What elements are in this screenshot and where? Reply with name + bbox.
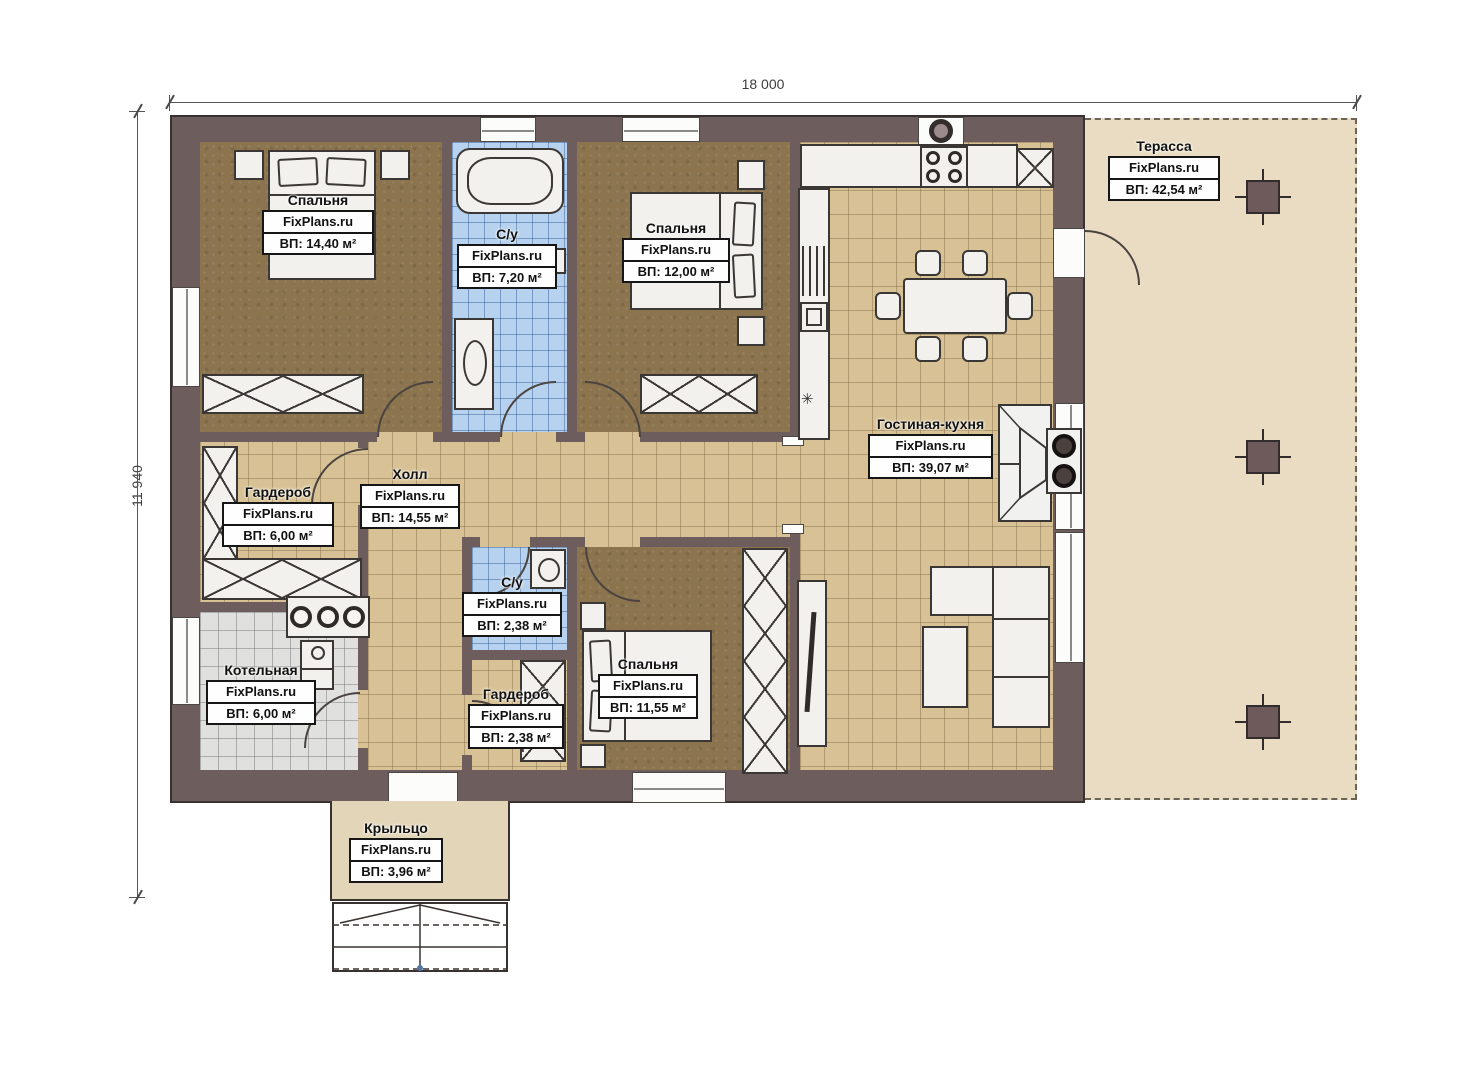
fridge <box>800 302 828 332</box>
room-area: ВП: 42,54 м² <box>1108 178 1220 202</box>
label-terrace: Терасса FixPlans.ru ВП: 42,54 м² <box>1108 138 1220 201</box>
pillow <box>277 157 318 187</box>
room-area: ВП: 14,55 м² <box>360 506 460 530</box>
brand-watermark: FixPlans.ru <box>598 674 698 698</box>
brand-watermark: FixPlans.ru <box>462 592 562 616</box>
wall-segment <box>556 432 585 442</box>
burner <box>926 169 940 183</box>
room-area: ВП: 14,40 м² <box>262 232 374 256</box>
shelf-x-panel <box>282 560 360 598</box>
terrace-door-opening <box>1053 228 1085 278</box>
nightstand <box>737 316 765 346</box>
washer-drum <box>290 606 312 628</box>
coffee-table <box>922 626 968 708</box>
chair <box>915 250 941 276</box>
window <box>622 117 700 142</box>
washbasin-cabinet <box>454 318 494 410</box>
wall-segment <box>472 650 567 660</box>
pillow <box>732 253 756 298</box>
boiler-symbol: ✳ <box>801 390 814 408</box>
chair <box>915 336 941 362</box>
window <box>172 617 200 705</box>
wardrobe-cabinet <box>640 374 758 414</box>
wall-segment <box>472 537 480 547</box>
room-area: ВП: 3,96 м² <box>349 860 443 884</box>
dimension-width-label: 18 000 <box>723 76 803 92</box>
chair <box>875 292 901 320</box>
room-name: Гостиная-кухня <box>868 416 993 432</box>
fridge-inner <box>806 308 822 326</box>
room-area: ВП: 6,00 м² <box>222 524 334 548</box>
room-name: Спальня <box>262 192 374 208</box>
fireplace <box>998 404 1052 522</box>
wardrobe-x-panel <box>744 661 786 717</box>
room-name: Гардероб <box>222 484 334 500</box>
brand-watermark: FixPlans.ru <box>262 210 374 234</box>
burner <box>948 169 962 183</box>
brand-watermark: FixPlans.ru <box>360 484 460 508</box>
wardrobe-x-panel <box>699 376 756 412</box>
room-name: Котельная <box>206 662 316 678</box>
window <box>172 287 200 387</box>
label-living-kitchen: Гостиная-кухня FixPlans.ru ВП: 39,07 м² <box>868 416 993 479</box>
sofa-seam <box>994 676 1048 678</box>
wardrobe-x-panel <box>744 550 786 606</box>
label-bedroom-3: Спальня FixPlans.ru ВП: 11,55 м² <box>598 656 698 719</box>
pillow <box>732 201 756 246</box>
door-jamb <box>782 524 804 534</box>
flue-circle <box>1052 464 1076 488</box>
dimension-width-line <box>170 102 1357 103</box>
room-terrace-floor <box>1085 118 1357 800</box>
room-name: С/у <box>462 574 562 590</box>
label-boiler: Котельная FixPlans.ru ВП: 6,00 м² <box>206 662 316 725</box>
column-post <box>1246 440 1280 474</box>
window <box>480 117 536 142</box>
bathtub-basin <box>467 157 553 205</box>
room-area: ВП: 2,38 м² <box>462 614 562 638</box>
room-name: Терасса <box>1108 138 1220 154</box>
nightstand <box>737 160 765 190</box>
room-name: Спальня <box>598 656 698 672</box>
room-name: Крыльцо <box>349 820 443 836</box>
tall-cabinet <box>1016 148 1054 188</box>
sofa-seam <box>994 618 1048 620</box>
dimension-height-line <box>137 112 138 898</box>
label-porch: Крыльцо FixPlans.ru ВП: 3,96 м² <box>349 820 443 883</box>
nightstand <box>234 150 264 180</box>
shelf-x-panel <box>204 560 282 598</box>
porch-steps <box>332 902 508 972</box>
brand-watermark: FixPlans.ru <box>868 434 993 458</box>
terrace-column <box>1235 429 1291 485</box>
label-bedroom-2: Спальня FixPlans.ru ВП: 12,00 м² <box>622 220 730 283</box>
bathtub <box>456 148 564 214</box>
label-wardrobe-2: Гардероб FixPlans.ru ВП: 2,38 м² <box>468 686 564 749</box>
brand-watermark: FixPlans.ru <box>222 502 334 526</box>
label-bathroom-2: С/у FixPlans.ru ВП: 2,38 м² <box>462 574 562 637</box>
washbasin-bowl <box>463 340 487 386</box>
wall-segment <box>462 755 472 770</box>
wardrobe-x-panel <box>642 376 699 412</box>
label-hall: Холл FixPlans.ru ВП: 14,55 м² <box>360 466 460 529</box>
dish-rack <box>802 246 826 296</box>
sink-bowl <box>311 646 325 660</box>
wardrobe-cabinet <box>742 548 788 774</box>
dining-table <box>903 278 1007 334</box>
window <box>1055 532 1084 663</box>
wall-segment <box>358 748 368 770</box>
shelf-unit <box>202 558 362 600</box>
chair <box>962 250 988 276</box>
sofa-chaise <box>992 566 1050 728</box>
room-area: ВП: 7,20 м² <box>457 266 557 290</box>
window <box>632 772 726 803</box>
terrace-column <box>1235 694 1291 750</box>
nightstand <box>380 150 410 180</box>
brand-watermark: FixPlans.ru <box>457 244 557 268</box>
wall-segment <box>567 537 577 770</box>
burner <box>948 151 962 165</box>
column-post <box>1246 180 1280 214</box>
room-area: ВП: 2,38 м² <box>468 726 564 750</box>
brand-watermark: FixPlans.ru <box>468 704 564 728</box>
wall-segment <box>442 142 452 432</box>
label-wardrobe-1: Гардероб FixPlans.ru ВП: 6,00 м² <box>222 484 334 547</box>
label-bathroom-1: С/у FixPlans.ru ВП: 7,20 м² <box>457 226 557 289</box>
wardrobe-x-panel <box>744 717 786 773</box>
washer-drum <box>343 606 365 628</box>
wardrobe-x-panel <box>283 376 362 412</box>
wall-segment <box>640 537 790 547</box>
entrance-door-opening <box>388 772 458 803</box>
room-name: Холл <box>360 466 460 482</box>
wall-segment <box>567 142 577 432</box>
wardrobe-x-panel <box>204 376 283 412</box>
cooker-hood-icon <box>929 119 953 143</box>
column-post <box>1246 705 1280 739</box>
nightstand <box>580 744 606 768</box>
room-area: ВП: 11,55 м² <box>598 696 698 720</box>
brand-watermark: FixPlans.ru <box>349 838 443 862</box>
nightstand <box>580 602 606 630</box>
brand-watermark: FixPlans.ru <box>622 238 730 262</box>
pillow <box>325 157 366 187</box>
burner <box>926 151 940 165</box>
room-name: С/у <box>457 226 557 242</box>
wall-segment <box>433 432 500 442</box>
room-name: Гардероб <box>468 686 564 702</box>
stove <box>920 146 968 188</box>
wardrobe-cabinet <box>202 374 364 414</box>
flue-circle <box>1052 434 1076 458</box>
terrace-column <box>1235 169 1291 225</box>
room-name: Спальня <box>622 220 730 236</box>
label-bedroom-1: Спальня FixPlans.ru ВП: 14,40 м² <box>262 192 374 255</box>
room-area: ВП: 12,00 м² <box>622 260 730 284</box>
chair <box>962 336 988 362</box>
room-area: ВП: 39,07 м² <box>868 456 993 480</box>
brand-watermark: FixPlans.ru <box>1108 156 1220 180</box>
washer-drum <box>317 606 339 628</box>
kitchen-counter <box>800 144 1018 188</box>
wardrobe-x-panel <box>744 606 786 662</box>
wall-segment <box>640 432 790 442</box>
floor-plan: 18 000 11 940 <box>0 0 1473 1080</box>
brand-watermark: FixPlans.ru <box>206 680 316 704</box>
chair <box>1007 292 1033 320</box>
room-area: ВП: 6,00 м² <box>206 702 316 726</box>
wall-segment <box>200 432 377 442</box>
